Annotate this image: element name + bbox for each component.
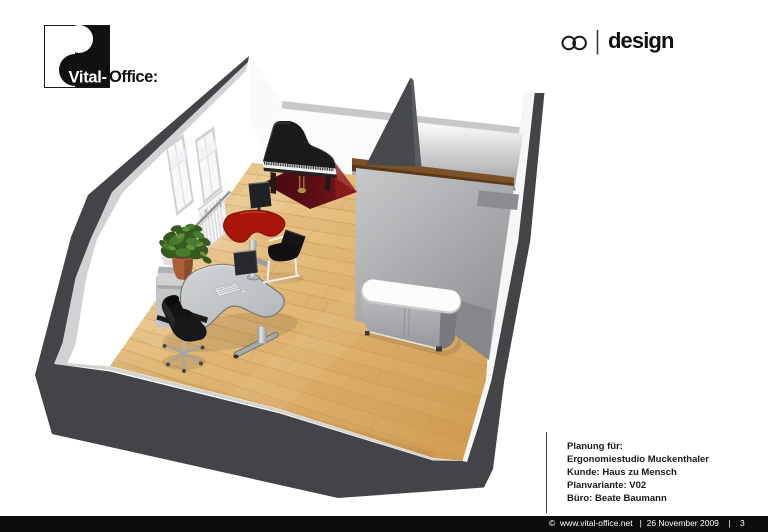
svg-text:Vital-: Vital- [69,69,107,87]
